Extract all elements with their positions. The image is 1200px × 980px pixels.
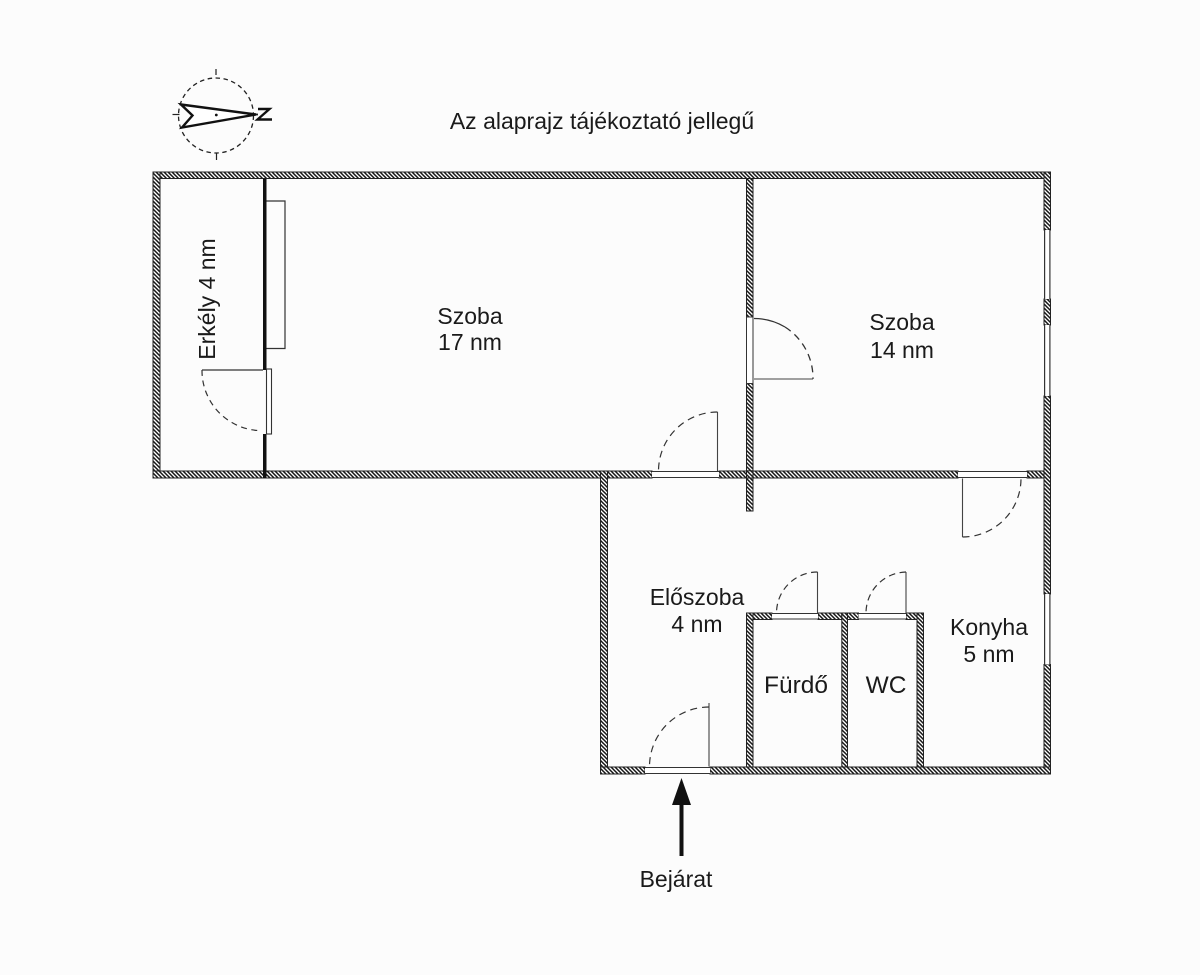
svg-text:Szoba: Szoba (437, 303, 502, 329)
svg-text:14 nm: 14 nm (870, 337, 934, 363)
svg-text:Előszoba: Előszoba (650, 584, 745, 610)
svg-text:WC: WC (866, 672, 907, 699)
svg-text:4 nm: 4 nm (671, 611, 722, 637)
svg-text:Fürdő: Fürdő (764, 672, 828, 699)
svg-text:Bejárat: Bejárat (640, 866, 713, 892)
svg-text:Az alaprajz tájékoztató jelleg: Az alaprajz tájékoztató jellegű (450, 108, 754, 134)
svg-text:17 nm: 17 nm (438, 329, 502, 355)
svg-text:Erkély 4 nm: Erkély 4 nm (194, 238, 220, 359)
svg-text:5 nm: 5 nm (963, 641, 1014, 667)
svg-text:Konyha: Konyha (950, 614, 1028, 640)
svg-text:Szoba: Szoba (869, 309, 934, 335)
